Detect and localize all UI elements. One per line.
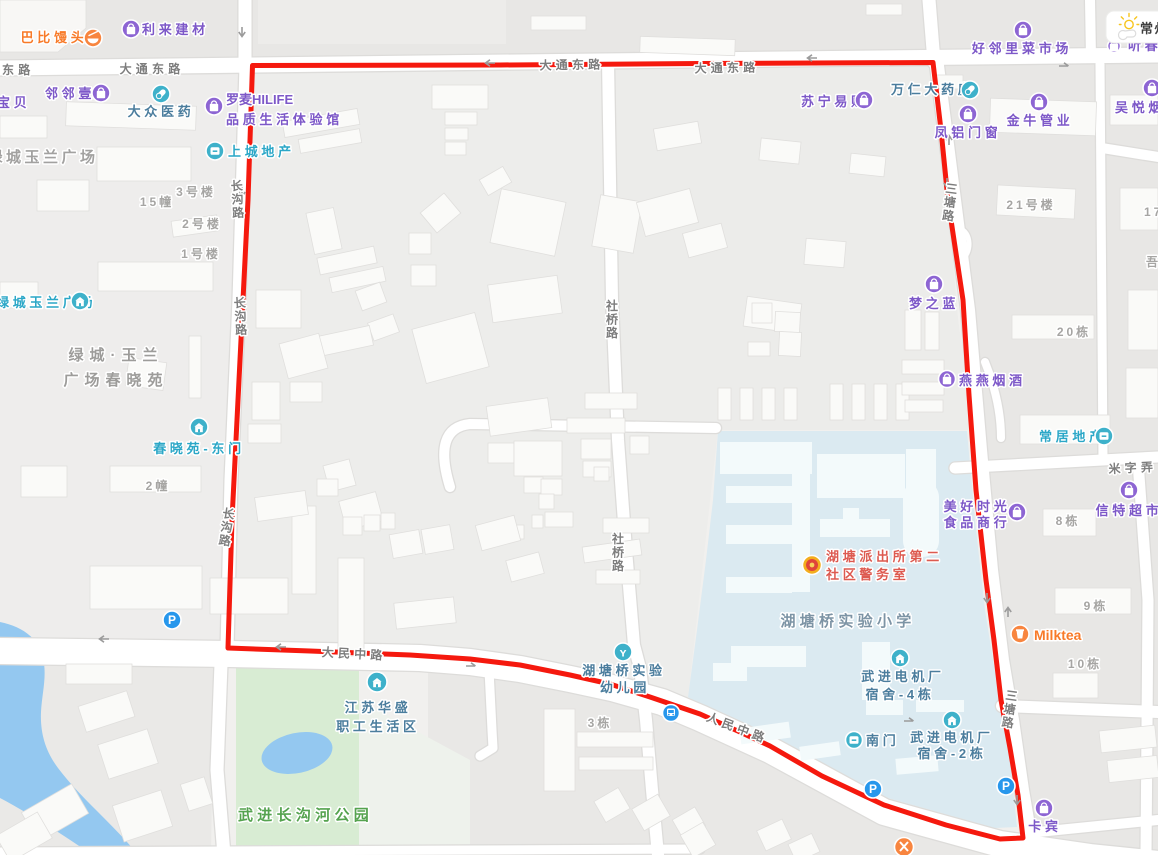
svg-text:路: 路 — [606, 325, 619, 340]
svg-text:路: 路 — [235, 322, 249, 338]
svg-text:利来建材: 利来建材 — [142, 22, 209, 37]
svg-text:Milktea: Milktea — [1034, 627, 1082, 643]
svg-text:沟: 沟 — [231, 191, 244, 207]
svg-text:湖塘桥实验小学: 湖塘桥实验小学 — [780, 612, 915, 630]
svg-text:食品商行: 食品商行 — [944, 515, 1011, 530]
svg-text:巴比馒头: 巴比馒头 — [21, 30, 88, 45]
svg-text:大众医药: 大众医药 — [128, 104, 195, 119]
svg-text:桥: 桥 — [612, 545, 625, 560]
svg-text:信特超市: 信特超市 — [1096, 503, 1158, 518]
svg-text:P: P — [1002, 779, 1010, 793]
svg-text:春晓苑-东门: 春晓苑-东门 — [152, 441, 245, 456]
svg-text:ʏ: ʏ — [620, 645, 627, 659]
svg-text:3栋: 3栋 — [588, 715, 613, 730]
svg-text:社: 社 — [611, 531, 624, 546]
svg-text:2号楼: 2号楼 — [182, 216, 222, 231]
svg-text:沟: 沟 — [234, 308, 247, 324]
svg-text:湖塘桥实验: 湖塘桥实验 — [582, 663, 666, 678]
svg-text:金牛管业: 金牛管业 — [1006, 113, 1074, 128]
svg-text:燕燕烟酒: 燕燕烟酒 — [959, 373, 1026, 388]
svg-text:大通东路: 大通东路 — [694, 59, 759, 75]
svg-text:大通东路: 大通东路 — [539, 56, 604, 72]
svg-text:品质生活体验馆: 品质生活体验馆 — [226, 112, 343, 127]
svg-text:桥: 桥 — [606, 312, 619, 327]
svg-text:10栋: 10栋 — [1068, 656, 1102, 671]
svg-text:上城地产: 上城地产 — [228, 144, 295, 159]
svg-text:9栋: 9栋 — [1084, 598, 1109, 613]
svg-text:P: P — [869, 782, 877, 796]
svg-text:8栋: 8栋 — [1056, 513, 1081, 528]
svg-text:社: 社 — [605, 298, 618, 313]
svg-text:20栋: 20栋 — [1057, 324, 1091, 339]
svg-text:邻邻壹: 邻邻壹 — [44, 86, 95, 101]
svg-text:大通东路: 大通东路 — [120, 61, 185, 76]
svg-text:广场春晓苑: 广场春晓苑 — [63, 371, 168, 389]
svg-text:吾: 吾 — [1146, 254, 1158, 269]
svg-text:常州: 常州 — [1140, 21, 1158, 36]
svg-text:东路: 东路 — [2, 62, 34, 77]
svg-text:21号楼: 21号楼 — [1006, 197, 1055, 212]
svg-text:15幢: 15幢 — [140, 194, 174, 209]
svg-text:路: 路 — [232, 205, 246, 221]
svg-text:社区警务室: 社区警务室 — [825, 567, 910, 582]
svg-text:宝贝: 宝贝 — [0, 95, 30, 110]
svg-text:职工生活区: 职工生活区 — [336, 719, 420, 734]
svg-text:卡宾: 卡宾 — [1028, 819, 1061, 834]
svg-text:幼儿园: 幼儿园 — [600, 680, 650, 695]
svg-text:宿舍-4栋: 宿舍-4栋 — [865, 687, 934, 702]
svg-text:武进电机厂: 武进电机厂 — [910, 730, 994, 745]
svg-text:长: 长 — [230, 178, 244, 194]
svg-text:凤铝门窗: 凤铝门窗 — [935, 125, 1002, 140]
svg-text:绿城玉兰广场: 绿城玉兰广场 — [0, 148, 99, 166]
svg-text:2幢: 2幢 — [146, 478, 171, 493]
svg-text:绿城·玉兰: 绿城·玉兰 — [69, 346, 164, 364]
svg-text:江苏华盛: 江苏华盛 — [345, 700, 412, 715]
svg-text:3号楼: 3号楼 — [176, 184, 216, 199]
svg-text:P: P — [168, 613, 176, 627]
svg-text:宿舍-2栋: 宿舍-2栋 — [917, 746, 986, 761]
svg-text:米字弄: 米字弄 — [1108, 459, 1157, 477]
svg-text:武进电机厂: 武进电机厂 — [861, 669, 945, 684]
svg-text:湖塘派出所第二: 湖塘派出所第二 — [826, 549, 943, 564]
svg-text:美好时光: 美好时光 — [944, 499, 1011, 514]
svg-text:长: 长 — [233, 295, 247, 311]
svg-text:路: 路 — [612, 558, 625, 573]
svg-text:梦之蓝: 梦之蓝 — [909, 296, 959, 311]
svg-text:吴悦烟酒: 吴悦烟酒 — [1115, 100, 1158, 115]
svg-text:17栋: 17栋 — [1144, 204, 1158, 219]
svg-text:1号楼: 1号楼 — [181, 246, 221, 261]
svg-text:好邻里菜市场: 好邻里菜市场 — [971, 41, 1072, 56]
svg-text:南门: 南门 — [866, 733, 899, 748]
svg-text:罗麦HILIFE: 罗麦HILIFE — [226, 92, 293, 107]
svg-text:武进长沟河公园: 武进长沟河公园 — [238, 806, 373, 824]
